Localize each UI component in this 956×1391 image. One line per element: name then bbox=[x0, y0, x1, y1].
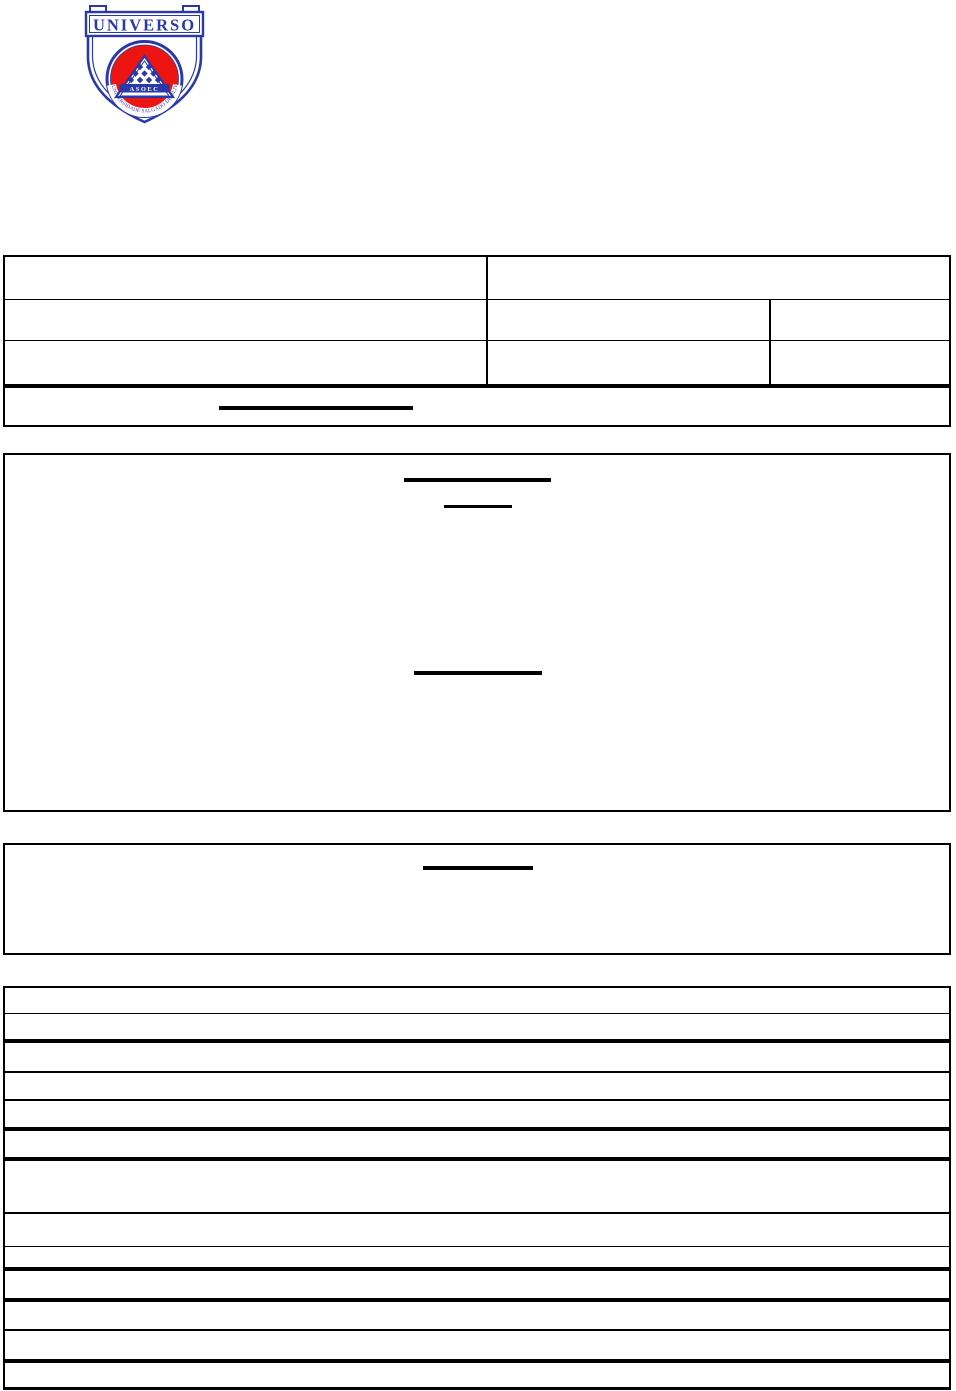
blank-underline bbox=[423, 866, 533, 870]
header-cell bbox=[488, 300, 771, 340]
table-row bbox=[5, 1101, 949, 1131]
header-row bbox=[5, 388, 949, 425]
lower-section-box bbox=[3, 843, 951, 955]
blank-underline bbox=[219, 406, 413, 410]
university-crest-logo: UNIVERSO UNIVERSIDADE SALGADO DE OLIVEIR… bbox=[70, 0, 220, 135]
header-cell bbox=[5, 300, 488, 340]
table-row bbox=[5, 1014, 949, 1043]
header-row bbox=[5, 300, 949, 341]
blank-underline bbox=[404, 478, 551, 482]
header-cell bbox=[5, 341, 488, 384]
logo-banner-text: UNIVERSO bbox=[93, 16, 196, 35]
header-cell bbox=[771, 300, 949, 340]
header-cell bbox=[5, 257, 488, 299]
table-row bbox=[5, 1043, 949, 1073]
header-cell bbox=[771, 341, 949, 384]
table-row bbox=[5, 1161, 949, 1214]
document-page: UNIVERSO UNIVERSIDADE SALGADO DE OLIVEIR… bbox=[0, 0, 956, 1391]
blank-underline bbox=[414, 671, 542, 675]
table-row bbox=[5, 1363, 949, 1387]
header-row bbox=[5, 257, 949, 300]
header-cell bbox=[488, 341, 771, 384]
logo-band-text: ASOEC bbox=[130, 86, 160, 93]
table-row bbox=[5, 1331, 949, 1363]
blank-underline bbox=[444, 505, 512, 508]
header-cell bbox=[488, 257, 949, 299]
table-row bbox=[5, 1302, 949, 1331]
table-row bbox=[5, 1131, 949, 1161]
table-row bbox=[5, 988, 949, 1014]
detail-table bbox=[3, 986, 951, 1390]
table-row bbox=[5, 1247, 949, 1271]
table-row bbox=[5, 1073, 949, 1101]
header-row bbox=[5, 341, 949, 388]
header-table bbox=[3, 255, 951, 427]
table-row bbox=[5, 1271, 949, 1302]
table-row bbox=[5, 1214, 949, 1247]
